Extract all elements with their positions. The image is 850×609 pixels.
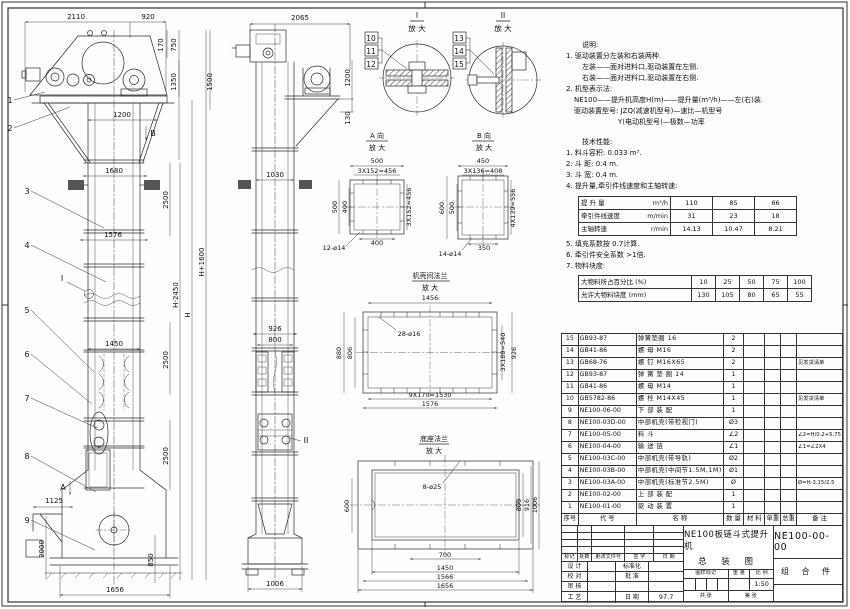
table-row: 主轴转速 r/min 14.13 10.47 8.21 bbox=[579, 223, 797, 236]
dim-front-2500c: 2500 bbox=[162, 447, 170, 465]
dim-fl-holes: 28-ø16 bbox=[398, 330, 421, 338]
dim-front-920: 920 bbox=[141, 13, 154, 21]
view-a-dims-lines bbox=[339, 166, 407, 239]
role-review: 审 核 bbox=[562, 582, 588, 592]
notes-heading: 说明: bbox=[566, 40, 843, 51]
title-block-revisions: 标记 处数 更改文件号 签 字 日 期 设 计 标准化 校 对 批 准 审 核 … bbox=[562, 526, 684, 601]
detail-ii-zoom: 放 大 bbox=[494, 23, 512, 33]
side-dims-lines bbox=[248, 24, 354, 592]
table-row: 提 升 量 m³/h 110 85 66 bbox=[579, 197, 797, 210]
role-process: 工 艺 bbox=[562, 592, 588, 603]
dim-front-hminus2450: H-2450 bbox=[172, 282, 180, 308]
perf-item: 4. 提升量,牵引件线速度和主轴转速: bbox=[566, 181, 843, 192]
detail-ref-i: I bbox=[61, 274, 63, 283]
dim-front-1450: 1450 bbox=[105, 340, 123, 348]
dim-vb-left2: 500 bbox=[448, 202, 456, 214]
dim-front-750: 750 bbox=[170, 38, 178, 51]
stamp-scale-label: 比 例 bbox=[750, 570, 773, 579]
dim-va-top2: 3X152=456 bbox=[358, 167, 397, 175]
bom-row: 10GB5782-86螺 栓 M14X451见发货清单 bbox=[562, 394, 843, 406]
flange-zoom: 放 大 bbox=[422, 283, 438, 292]
bom-header-row: 序号代 号 名 称数 量 材 料单重 总重备 注 bbox=[562, 514, 843, 526]
balloon-10: 10 bbox=[366, 34, 376, 43]
detail-ii bbox=[453, 21, 541, 118]
view-a-zoom: 放 大 bbox=[369, 143, 385, 152]
scale-value: 1:50 bbox=[750, 579, 773, 591]
detail-ii-texts: II 放 大 13 14 15 bbox=[454, 11, 512, 69]
dim-vb-top2: 3X136=408 bbox=[464, 167, 503, 175]
view-a-title: A 向 bbox=[370, 131, 384, 140]
stamp-weight-label: 重 量 bbox=[729, 570, 751, 579]
base-texts: 底座法兰 放 大 8-ø25 600 800 916 1006 700 1450… bbox=[343, 434, 539, 590]
dim-front-2500a: 2500 bbox=[162, 191, 170, 209]
detail-i-texts: I 放 大 10 11 12 bbox=[366, 11, 426, 69]
dim-fl-left: 880 bbox=[335, 347, 343, 359]
dim-fl-right: 3X180=540 bbox=[499, 333, 507, 372]
dim-side-130: 130 bbox=[344, 111, 352, 124]
drawing-subtitle: 总 装 图 bbox=[698, 555, 759, 567]
base-zoom: 放 大 bbox=[426, 446, 442, 455]
bom-row: 11GB41-86螺 母 M141 bbox=[562, 382, 843, 394]
perf-item: 1. 料斗容积: 0.033 m³. bbox=[566, 148, 843, 159]
dim-side-1030: 1030 bbox=[266, 171, 284, 179]
dim-side-800: 800 bbox=[268, 336, 281, 344]
dim-front-1656: 1656 bbox=[106, 586, 124, 594]
table-row: 允许大物料块度 (mm) 130 105 80 65 55 bbox=[579, 289, 812, 302]
rev-header: 日 期 bbox=[654, 554, 683, 562]
dim-front-1125: 1125 bbox=[45, 497, 63, 505]
bom-row: 8NE100-03D-00中部机壳(带检视门)Ø3 bbox=[562, 418, 843, 430]
dim-base-700: 700 bbox=[439, 551, 451, 559]
bom-row: 12GB93-87弹 簧 垫 圈 141 bbox=[562, 370, 843, 382]
rev-header: 标记 bbox=[562, 554, 578, 562]
dim-va-bottom: 400 bbox=[371, 239, 383, 247]
assembly-label: 组 合 件 bbox=[781, 566, 835, 577]
balloon-3: 3 bbox=[24, 187, 29, 196]
notes-panel: 说明: 1. 驱动装置分左装和右装两种. 左装——面对进料口,驱动装置在左侧. … bbox=[566, 40, 843, 302]
balloon-6: 6 bbox=[24, 350, 29, 359]
balloon-1: 1 bbox=[7, 96, 12, 105]
dim-fl-bottom2: 1576 bbox=[422, 400, 439, 408]
balloon-8: 8 bbox=[24, 452, 29, 461]
dim-base-right: 800 bbox=[515, 499, 523, 511]
base-title: 底座法兰 bbox=[420, 434, 448, 443]
capacity-table: 提 升 量 m³/h 110 85 66 牵引件线速度 m/min 31 23 … bbox=[578, 196, 797, 236]
lump-size-table: 大物料所占百分比 (%) 10 25 50 75 100 允许大物料块度 (mm… bbox=[578, 275, 812, 302]
balloon-5: 5 bbox=[24, 306, 29, 315]
dim-front-1576: 1576 bbox=[104, 231, 122, 239]
section-marker-b: B bbox=[150, 129, 156, 138]
drawing-sheet: { "notes": { "heading": "说明:", "lines": … bbox=[0, 0, 850, 609]
perf-item: 5. 填充系数按 0.7计算. bbox=[566, 239, 843, 250]
detail-ref-ii: II bbox=[304, 436, 309, 445]
dim-front-hplus1600: H+1600 bbox=[198, 248, 206, 277]
dim-va-left2: 400 bbox=[341, 201, 349, 213]
rev-header: 更改文件号 bbox=[592, 554, 626, 562]
title-block: 标记 处数 更改文件号 签 字 日 期 设 计 标准化 校 对 批 准 审 核 … bbox=[561, 525, 843, 602]
performance-heading: 技术性能: bbox=[566, 137, 843, 148]
date-value: 97.7 bbox=[649, 592, 683, 603]
dim-front-2500b: 2500 bbox=[162, 351, 170, 369]
dim-base-left: 600 bbox=[343, 500, 351, 512]
perf-item: 7. 物料块度: bbox=[566, 261, 843, 272]
bom-row: 7NE100-05-00料 斗∠2∠2=H/0.2+5.75 bbox=[562, 430, 843, 442]
dim-base-holes: 8-ø25 bbox=[423, 483, 442, 491]
dim-front-1200: 1200 bbox=[113, 111, 131, 119]
dim-vb-top: 450 bbox=[477, 157, 489, 165]
stamp-mark-label: 图样标记 bbox=[684, 570, 729, 579]
bom-row: 14GB41-86螺 母 M162 bbox=[562, 346, 843, 358]
detail-i bbox=[365, 21, 455, 116]
dim-front-1680: 1680 bbox=[105, 167, 123, 175]
bom-row: 6NE100-04-00输 送 链∠1∠1=∠2X4 bbox=[562, 442, 843, 454]
drawing-number: NE100-00-00 bbox=[774, 531, 842, 553]
role-design: 设 计 bbox=[562, 562, 588, 572]
dim-fl-top: 1456 bbox=[422, 294, 439, 302]
dim-base-1566: 1566 bbox=[437, 573, 454, 581]
dim-front-170: 170 bbox=[157, 38, 165, 51]
detail-ii-label: II bbox=[501, 11, 505, 20]
base-detail bbox=[350, 444, 541, 555]
dim-vb-holes: 14-ø14 bbox=[439, 250, 462, 258]
title-block-right: NE100-00-00 组 合 件 bbox=[774, 526, 842, 601]
balloon-14: 14 bbox=[454, 47, 464, 56]
bom-row: 4NE100-03B-00中部机壳(中间节1.5M,1M)Ø1 bbox=[562, 466, 843, 478]
drawing-title: NE100板链斗式提升机 bbox=[684, 528, 773, 552]
detail-i-label: I bbox=[416, 11, 418, 20]
dim-side-926: 926 bbox=[268, 325, 282, 333]
date-label: 日 期 bbox=[616, 592, 650, 603]
dim-base-right2: 916 bbox=[523, 499, 531, 511]
dim-fl-bottom: 9X170=1530 bbox=[409, 391, 452, 399]
dim-base-right3: 1006 bbox=[531, 497, 539, 514]
side-view bbox=[232, 24, 340, 585]
dim-front-2110: 2110 bbox=[67, 13, 85, 21]
bom-row: 9NE100-06-00下 部 装 配1 bbox=[562, 406, 843, 418]
dim-front-1500: 1500 bbox=[206, 73, 214, 91]
dim-front-1350: 1350 bbox=[170, 73, 178, 91]
balloon-13: 13 bbox=[454, 34, 464, 43]
dim-side-1200: 1200 bbox=[344, 69, 352, 87]
balloon-12: 12 bbox=[366, 60, 376, 69]
front-dims-lines bbox=[14, 22, 210, 598]
table-row: 大物料所占百分比 (%) 10 25 50 75 100 bbox=[579, 276, 812, 289]
sheets-total: 共 张 bbox=[684, 591, 729, 602]
balloon-11: 11 bbox=[366, 47, 376, 56]
rev-header: 处数 bbox=[578, 554, 592, 562]
section-marker-a: A bbox=[60, 483, 66, 492]
dim-vb-bottom: 350 bbox=[478, 244, 490, 252]
role-check: 校 对 bbox=[562, 572, 588, 582]
dim-side-2065: 2065 bbox=[291, 14, 309, 22]
bom-row: 3NE100-03A-00中部机壳(标准节2.5M)ØØ=H-3.15/2.5 bbox=[562, 478, 843, 490]
dim-vb-left: 600 bbox=[438, 202, 446, 214]
flange-title: 机壳间法兰 bbox=[413, 271, 448, 280]
dim-va-top: 500 bbox=[371, 157, 383, 165]
note-line: Y(电动机型号)—极数—功率 bbox=[566, 117, 843, 128]
bom-row: 15GB93-87弹簧垫圈 162 bbox=[562, 334, 843, 346]
dim-va-left: 500 bbox=[331, 201, 339, 213]
dim-va-holes: 12-ø14 bbox=[323, 244, 346, 252]
view-b-dims-lines bbox=[447, 166, 511, 244]
note-line: 2. 机型表示法: bbox=[566, 84, 843, 95]
perf-item: 3. 斗 宽: 0.4 m. bbox=[566, 170, 843, 181]
note-line: 右装——面对进料口,驱动装置在右侧. bbox=[566, 73, 843, 84]
flange-texts: 机壳间法兰 放 大 1456 28-ø16 880 806 3X180=540 … bbox=[335, 271, 518, 408]
rev-header: 签 字 bbox=[625, 554, 654, 562]
balloon-2: 2 bbox=[7, 124, 12, 133]
note-line: 驱动装置型号: JZQ(减速机型号)—速比—机型号 bbox=[566, 106, 843, 117]
dim-front-h: H bbox=[184, 312, 192, 317]
view-b-title: B 向 bbox=[477, 131, 491, 140]
balloon-15: 15 bbox=[454, 60, 464, 69]
note-line: 1. 驱动装置分左装和右装两种. bbox=[566, 51, 843, 62]
bom-row: 1NE100-01-00驱 动 装 置1 bbox=[562, 502, 843, 514]
title-block-center: NE100板链斗式提升机 总 装 图 图样标记 重 量 比 例 1:50 共 张… bbox=[684, 526, 774, 601]
dim-base-1450: 1450 bbox=[437, 564, 454, 572]
sheet-number: 第 张 bbox=[729, 591, 774, 602]
view-b-zoom: 放 大 bbox=[476, 143, 492, 152]
table-row: 牵引件线速度 m/min 31 23 18 bbox=[579, 210, 797, 223]
dim-front-2000: 2000 bbox=[38, 540, 46, 558]
role-approve: 批 准 bbox=[616, 572, 650, 582]
dim-va-right: 3X152=456 bbox=[405, 188, 413, 227]
note-line: NE100——提升机高度H(m)——提升量(m³/h)——左(右)装. bbox=[566, 95, 843, 106]
dim-vb-right: 4X139=556 bbox=[509, 189, 517, 228]
bom-table: 15GB93-87弹簧垫圈 162 14GB41-86螺 母 M162 13GB… bbox=[561, 333, 843, 526]
dim-fl-right2: 926 bbox=[510, 347, 518, 359]
balloon-4: 4 bbox=[24, 241, 29, 250]
dim-side-1006: 1006 bbox=[266, 580, 284, 588]
dim-front-850: 850 bbox=[147, 553, 155, 566]
role-standard: 标准化 bbox=[616, 562, 650, 572]
balloon-7: 7 bbox=[24, 394, 29, 403]
bom-row: 2NE100-02-00上 部 装 配1 bbox=[562, 490, 843, 502]
perf-item: 6. 牵引件安全系数 >1倍. bbox=[566, 250, 843, 261]
bom-row: 13GB68-76螺 钉 M16X652见发货清单 bbox=[562, 358, 843, 370]
bom-row: 5NE100-03C-00中部机壳(带导轨)Ø2 bbox=[562, 454, 843, 466]
perf-item: 2. 斗 距: 0.4 m. bbox=[566, 159, 843, 170]
balloon-9: 9 bbox=[24, 516, 29, 525]
dim-fl-left2: 806 bbox=[346, 347, 354, 359]
note-line: 左装——面对进料口,驱动装置在左侧. bbox=[566, 62, 843, 73]
detail-i-zoom: 放 大 bbox=[408, 23, 426, 33]
dim-base-1656: 1656 bbox=[437, 582, 454, 590]
